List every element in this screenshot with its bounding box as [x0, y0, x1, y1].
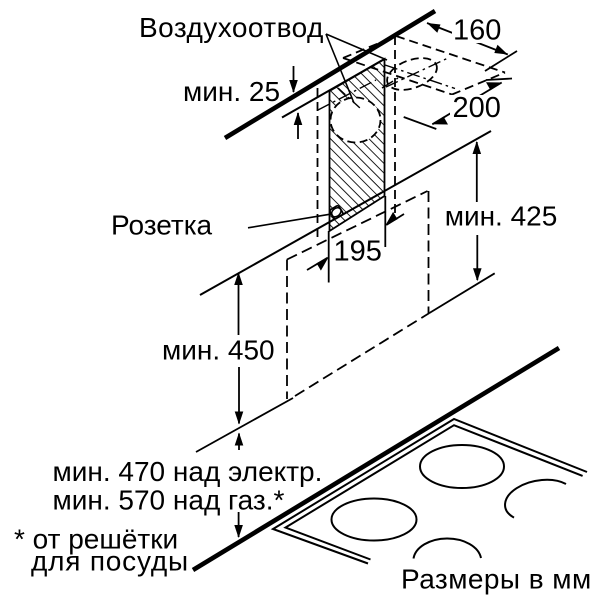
svg-text:Воздухоотвод: Воздухоотвод: [139, 12, 324, 43]
svg-text:195: 195: [334, 236, 382, 268]
svg-text:Розетка: Розетка: [111, 210, 213, 241]
svg-text:мин. 450: мин. 450: [162, 334, 275, 365]
svg-text:мин. 570 над газ.*: мин. 570 над газ.*: [53, 485, 285, 516]
svg-text:мин. 425: мин. 425: [445, 201, 558, 232]
svg-text:мин. 470 над электр.: мин. 470 над электр.: [53, 456, 323, 487]
svg-text:для посуды: для посуды: [31, 546, 189, 577]
svg-text:мин. 25: мин. 25: [183, 76, 280, 107]
svg-text:Размеры в мм: Размеры в мм: [401, 564, 592, 595]
svg-text:160: 160: [453, 15, 501, 47]
svg-text:200: 200: [453, 92, 501, 124]
